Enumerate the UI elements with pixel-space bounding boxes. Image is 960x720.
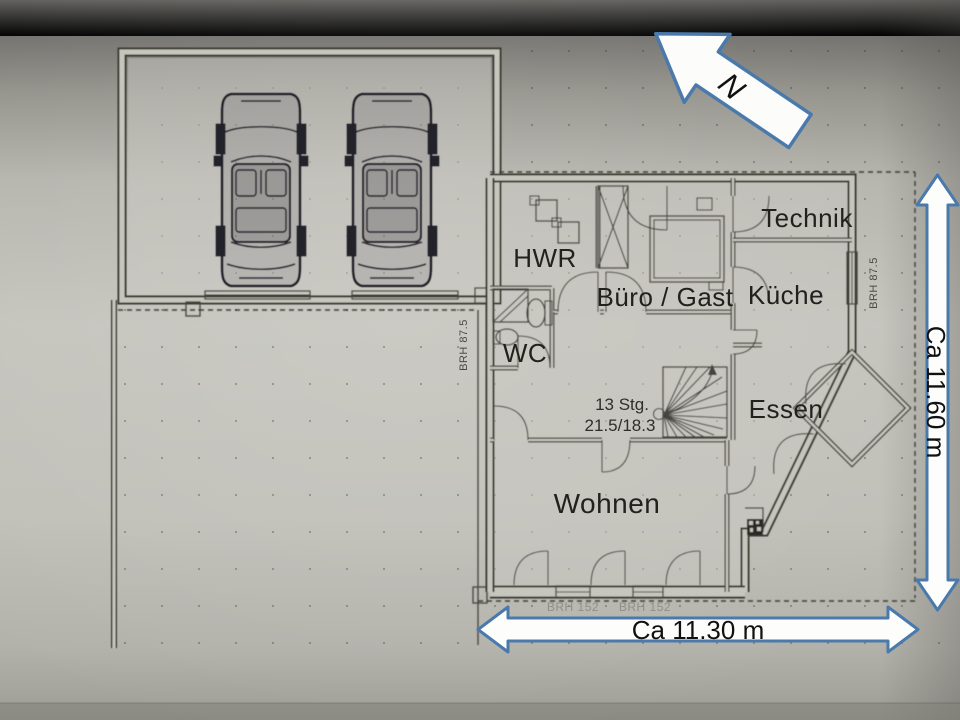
label-hwr: HWR [513, 243, 577, 273]
brh-note-right: BRH 87.5 [868, 257, 880, 309]
stamp-mark [747, 519, 763, 535]
brh-note-left: BRH 87.5 [458, 319, 470, 371]
brh-note-bottom-1: BRH 152 [547, 600, 599, 614]
label-kueche: Küche [748, 280, 824, 310]
stairs-note-line1: 13 Stg. [595, 395, 649, 414]
dimension-width-label: Ca 11.30 m [632, 615, 764, 645]
garage-floor [128, 58, 491, 294]
dimension-height-label: Ca 11.60 m [921, 326, 951, 458]
floor-plan-canvas: HWR Büro / Gast Technik Küche WC Essen W… [0, 0, 960, 720]
car-2 [345, 94, 439, 286]
stairs-note-line2: 21.5/18.3 [585, 416, 656, 435]
car-1 [214, 94, 308, 286]
brh-note-bottom-2: BRH 152 [619, 600, 671, 614]
label-technik: Technik [761, 203, 853, 233]
label-wohnen: Wohnen [554, 488, 661, 519]
label-wc: WC [503, 338, 547, 368]
label-essen: Essen [749, 394, 824, 424]
label-buero: Büro / Gast [597, 282, 734, 312]
photo-bottom-edge [0, 703, 960, 720]
floor-plan-photo: HWR Büro / Gast Technik Küche WC Essen W… [0, 0, 960, 720]
